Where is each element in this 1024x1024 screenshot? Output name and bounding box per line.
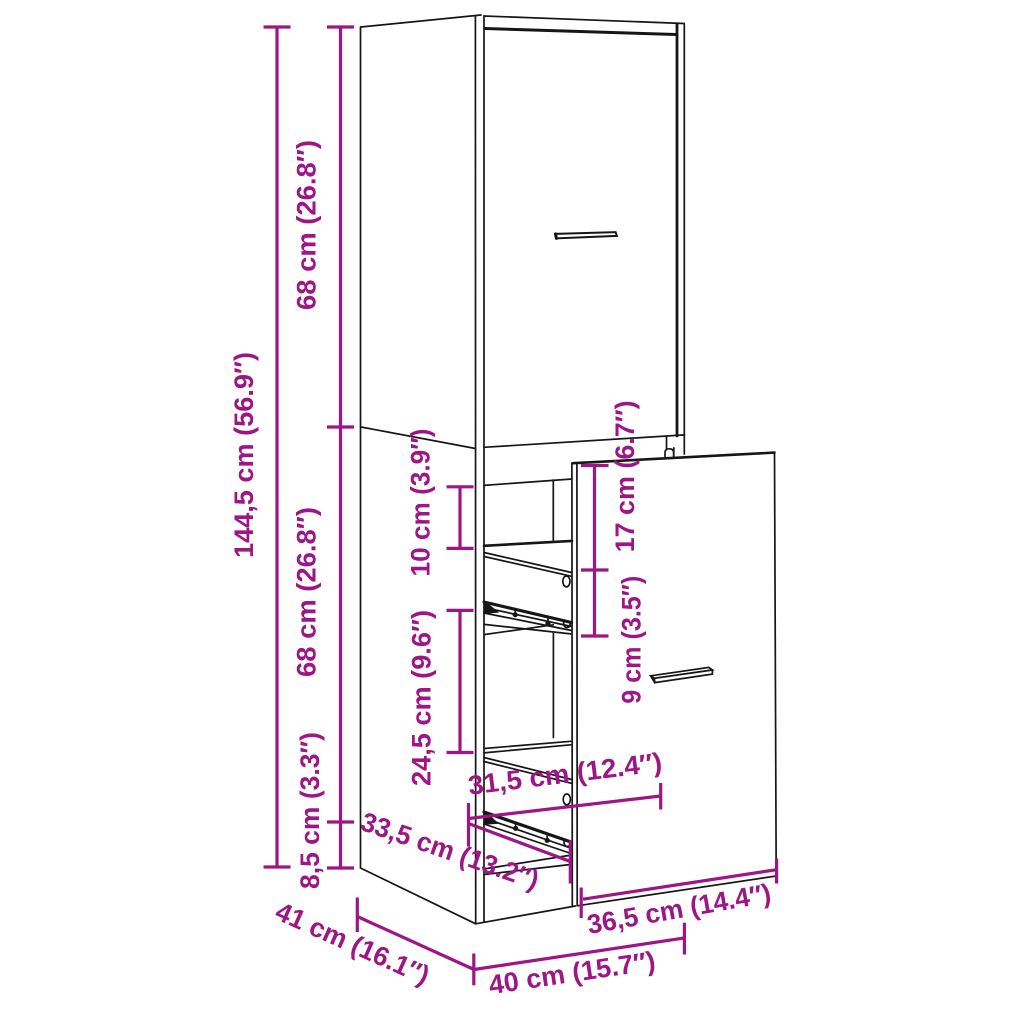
svg-text:144,5 cm (56.9″): 144,5 cm (56.9″) [229, 352, 259, 558]
svg-text:24,5 cm (9.6″): 24,5 cm (9.6″) [406, 610, 436, 786]
svg-text:68 cm (26.8″): 68 cm (26.8″) [292, 140, 322, 310]
svg-text:8,5 cm (3.3″): 8,5 cm (3.3″) [295, 732, 325, 889]
svg-text:17 cm (6.7″): 17 cm (6.7″) [610, 400, 640, 552]
svg-text:9 cm (3.5″): 9 cm (3.5″) [617, 576, 647, 704]
svg-text:68 cm (26.8″): 68 cm (26.8″) [292, 507, 322, 677]
svg-text:10 cm (3.9″): 10 cm (3.9″) [405, 429, 435, 577]
